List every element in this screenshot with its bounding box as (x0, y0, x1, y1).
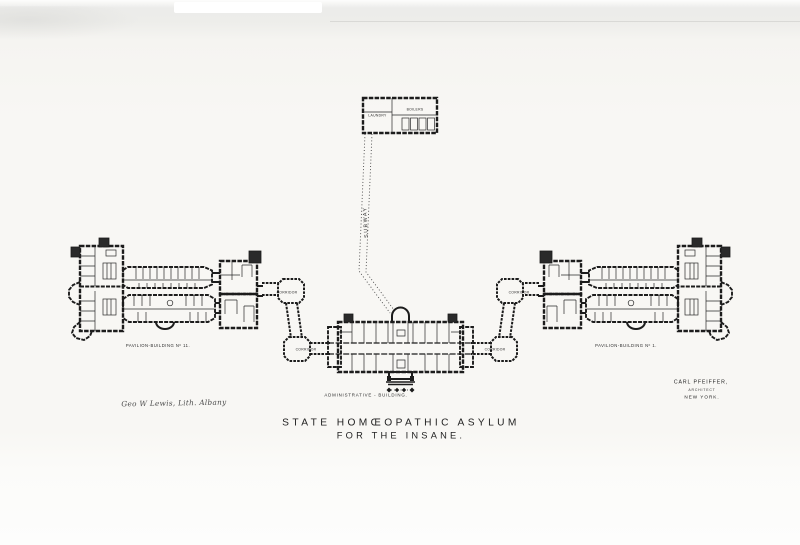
corridor-label: CORRIDOR (277, 291, 298, 295)
administrative-building-label: ADMINISTRATIVE - BUILDING. (324, 393, 407, 398)
end-house (69, 238, 123, 340)
left-pavilion-plan (69, 238, 263, 340)
lithographer-credit: Geo W Lewis, Lith. Albany (121, 398, 227, 409)
upper-ward-wing (123, 267, 212, 288)
pavilion-right-label: PAVILION-BUILDING Nº 1. (595, 343, 657, 348)
architect-name: CARL PFEIFFER, (674, 380, 728, 386)
chimney-icon (71, 247, 80, 257)
chimney-icon (99, 238, 109, 247)
bay-window (69, 282, 80, 305)
lower-ward-wing (123, 295, 215, 329)
column-circle (167, 300, 173, 306)
apse (392, 308, 409, 324)
architect-credit: CARL PFEIFFER, ARCHITECT NEW YORK. (674, 380, 728, 400)
chimney-icon (249, 251, 261, 263)
central-corridor (328, 343, 473, 354)
subway-route: SUBWAY (359, 134, 394, 313)
south-bay (156, 322, 174, 329)
boilers-room-label: BOILERS (407, 108, 424, 112)
architect-title: ARCHITECT (688, 388, 715, 392)
plan-title-line2: FOR THE INSANE. (337, 431, 465, 441)
pavilion-left-label: PAVILION-BUILDING Nº 11. (126, 343, 190, 348)
chimney-icon (448, 314, 457, 322)
architect-city: NEW YORK. (684, 395, 719, 400)
right-pavilion-plan (538, 238, 732, 340)
connecting-block (212, 251, 263, 328)
administrative-building-plan (328, 308, 473, 393)
chimney-icon (344, 314, 353, 322)
lithograph-page: LAUNDRY BOILERS SUBWAY (0, 0, 800, 545)
corridor-label: CORRIDOR (509, 291, 530, 295)
floor-plan-drawing: LAUNDRY BOILERS SUBWAY (0, 0, 800, 545)
corridor-label: CORRIDOR (296, 348, 317, 352)
laundry-room-label: LAUNDRY (368, 114, 387, 118)
boiler-house-plan: LAUNDRY BOILERS (363, 98, 437, 133)
plan-title-line1: STATE HOMŒOPATHIC ASYLUM (282, 418, 520, 429)
entrance-steps (386, 372, 415, 385)
corridor-label: CORRIDOR (485, 348, 506, 352)
boiler-units (402, 118, 435, 130)
